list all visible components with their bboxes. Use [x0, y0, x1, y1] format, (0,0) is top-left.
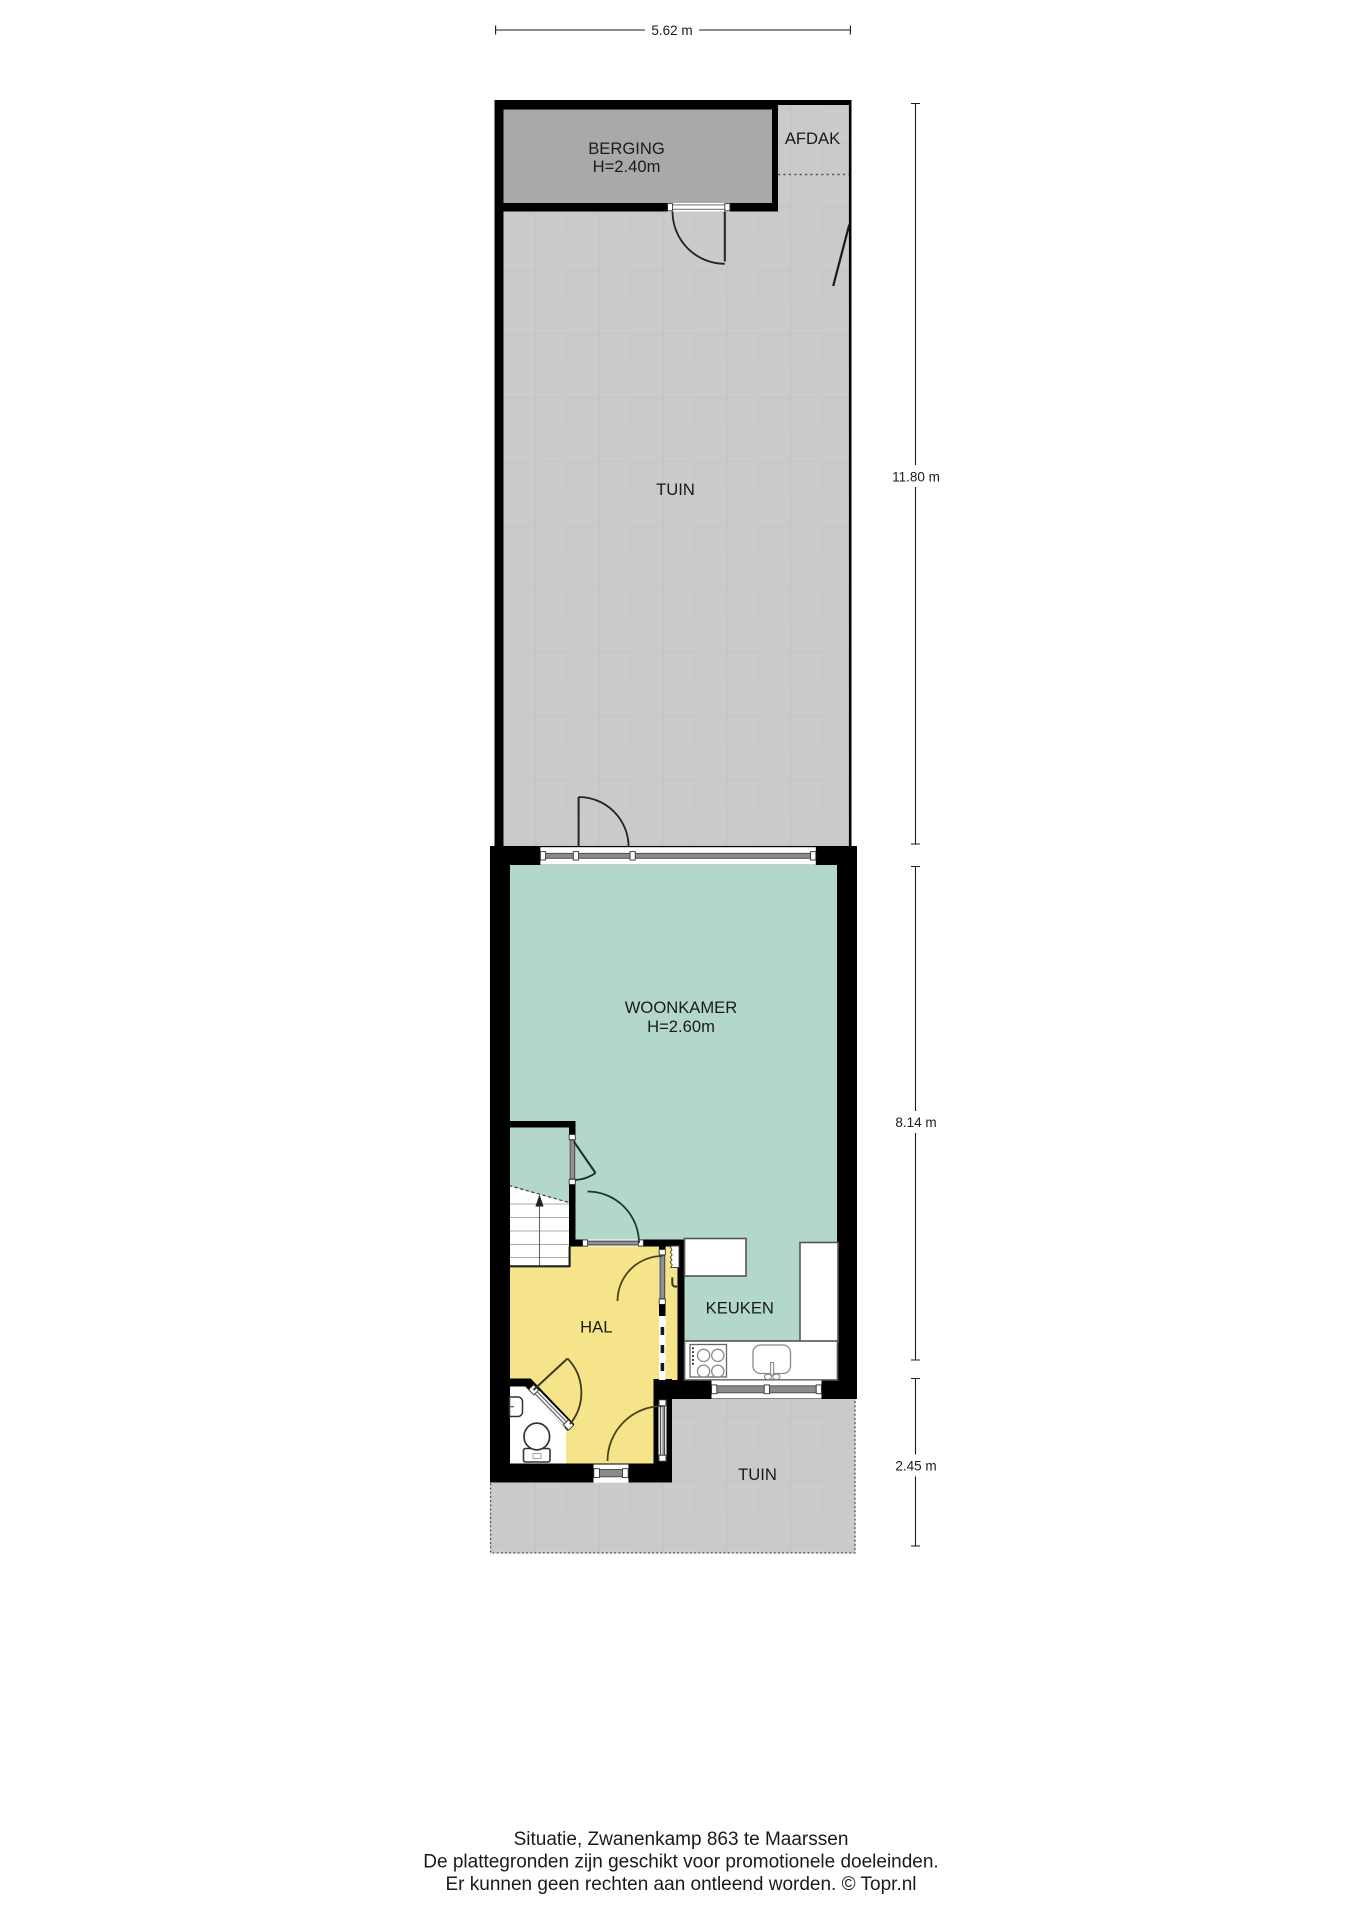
svg-text:TUIN: TUIN: [656, 480, 695, 499]
svg-text:Er kunnen geen rechten aan ont: Er kunnen geen rechten aan ontleend word…: [445, 1874, 916, 1895]
svg-text:De plattegronden zijn geschikt: De plattegronden zijn geschikt voor prom…: [423, 1852, 938, 1873]
svg-text:H=2.60m: H=2.60m: [647, 1017, 715, 1036]
svg-text:BERGING: BERGING: [588, 139, 665, 158]
svg-text:KEUKEN: KEUKEN: [706, 1299, 774, 1318]
svg-text:WOONKAMER: WOONKAMER: [625, 998, 737, 1017]
svg-text:TUIN: TUIN: [738, 1465, 777, 1484]
svg-text:HAL: HAL: [580, 1318, 612, 1337]
svg-text:H=2.40m: H=2.40m: [593, 157, 661, 176]
svg-text:8.14 m: 8.14 m: [895, 1115, 936, 1130]
svg-text:2.45 m: 2.45 m: [895, 1459, 936, 1474]
svg-text:11.80 m: 11.80 m: [892, 470, 940, 485]
svg-text:5.62 m: 5.62 m: [651, 23, 692, 38]
svg-text:AFDAK: AFDAK: [785, 129, 840, 148]
svg-text:Situatie, Zwanenkamp 863 te Ma: Situatie, Zwanenkamp 863 te Maarssen: [514, 1829, 849, 1850]
